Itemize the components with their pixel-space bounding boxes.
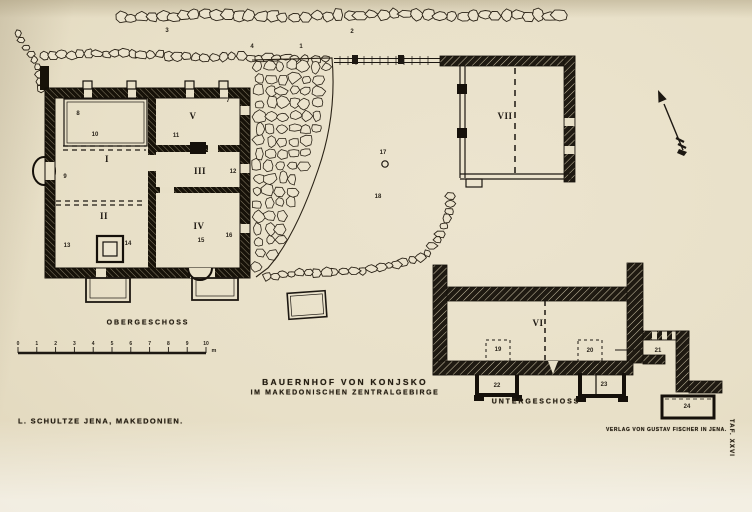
building-vii xyxy=(440,56,575,187)
plate-number: TAF. XXVI xyxy=(728,419,734,457)
plan-drawing xyxy=(0,0,752,512)
yard-platform xyxy=(287,291,327,320)
caption-obergeschoss: OBERGESCHOSS xyxy=(107,320,190,327)
scale-bar xyxy=(18,347,206,353)
north-arrow-icon xyxy=(658,90,687,156)
courtyard-mark xyxy=(382,161,388,167)
publisher-caption: VERLAG VON GUSTAV FISCHER IN JENA. xyxy=(606,427,727,433)
scanned-plate: IIIIIIIVVVIVII12347891011121314151617181… xyxy=(0,0,752,512)
building-obergeschoss xyxy=(33,66,250,302)
fence-line xyxy=(334,55,440,65)
caption-untergeschoss: UNTERGESCHOSS xyxy=(492,399,581,406)
author-caption: L. SCHULTZE JENA, MAKEDONIEN. xyxy=(18,417,183,426)
plate-title-line1: BAUERNHOF VON KONJSKO xyxy=(262,377,428,387)
building-untergeschoss xyxy=(433,263,722,418)
plate-title-line2: IM MAKEDONISCHEN ZENTRALGEBIRGE xyxy=(251,390,440,397)
